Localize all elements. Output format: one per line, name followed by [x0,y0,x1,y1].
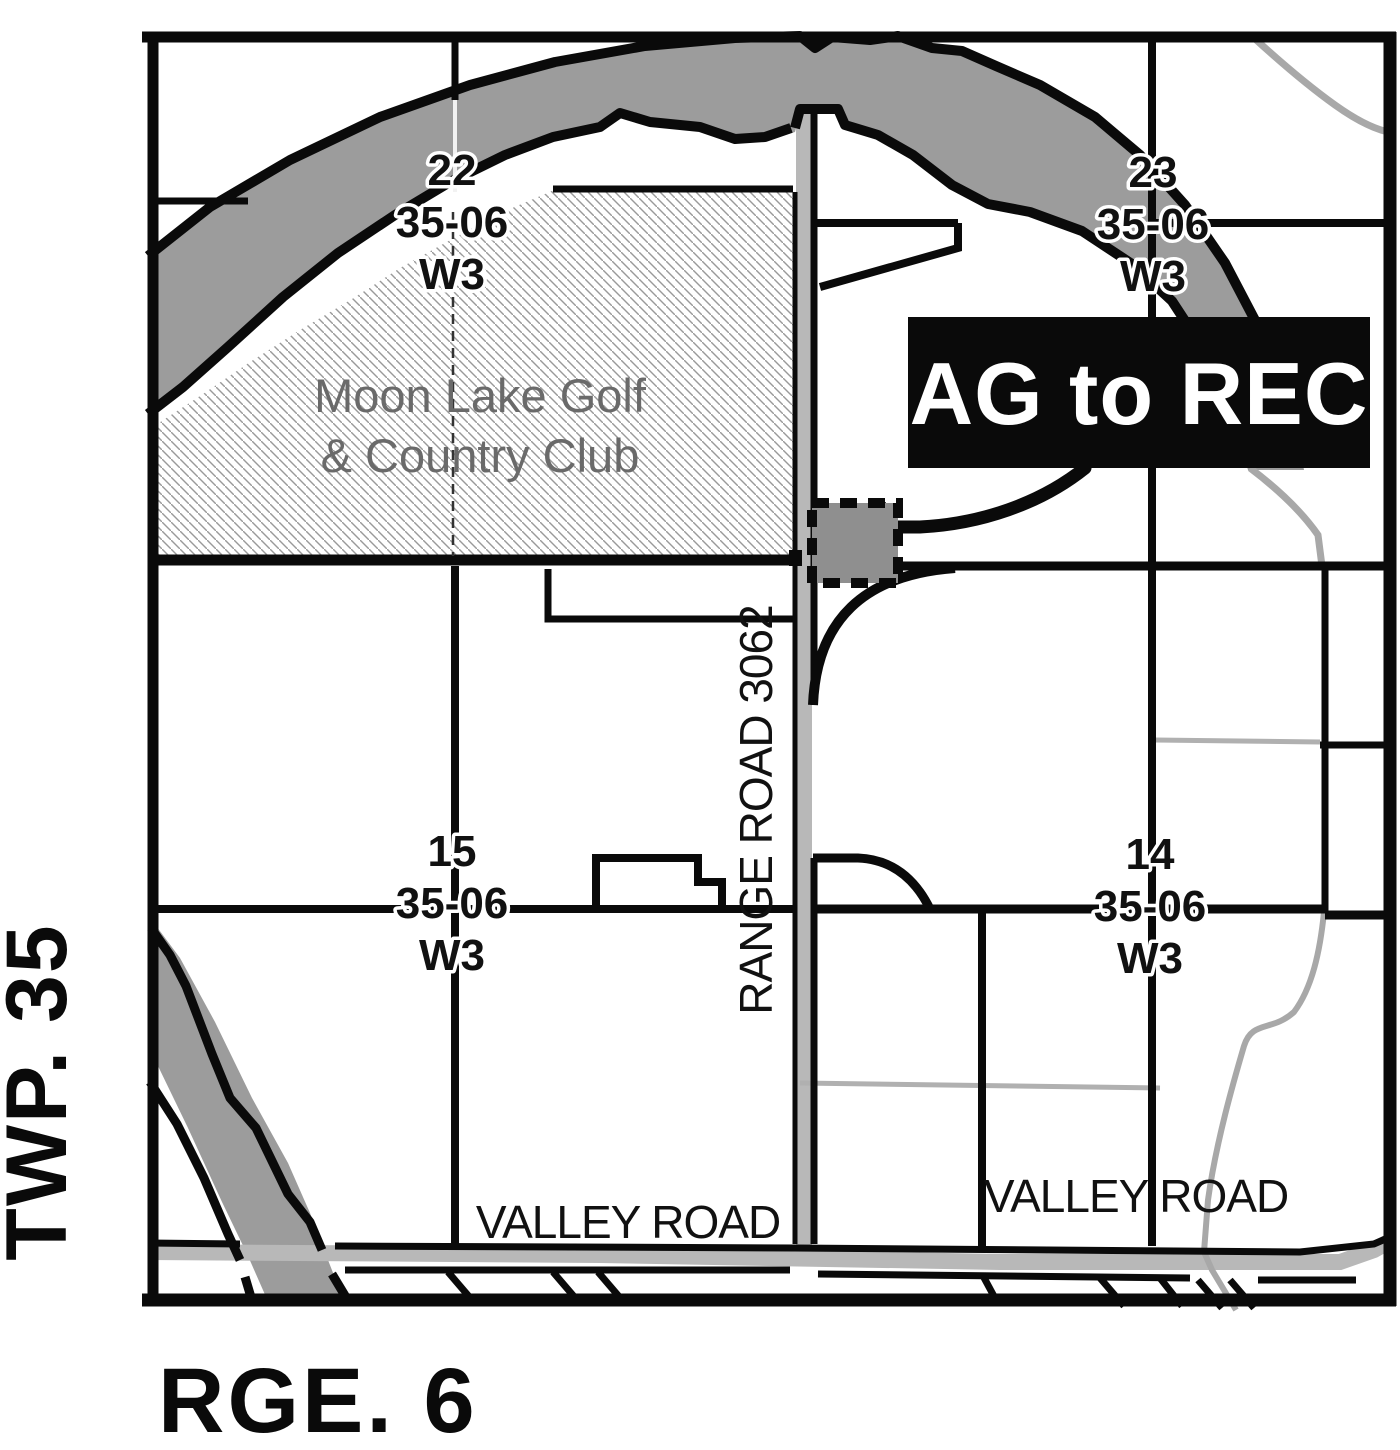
section-15-twprge: 35-06 [396,879,509,928]
valley-road-label-west: VALLEY ROAD [476,1196,780,1248]
section-23-number: 23 [1129,148,1178,197]
callout-label: AG to REC [910,344,1369,443]
subject-parcel [812,503,898,583]
valley-road-north-edge-west [148,1243,240,1244]
section-22-twprge: 35-06 [396,198,509,247]
section-14-twprge: 35-06 [1094,882,1207,931]
range-road-label: RANGE ROAD 3062 [730,605,782,1014]
range-label: RGE. 6 [158,1350,478,1450]
section-22-meridian: W3 [419,250,485,299]
section-23-meridian: W3 [1120,252,1186,301]
golf-label-line2: & Country Club [321,429,640,482]
trail-line-ne [1155,740,1320,742]
golf-label-line1: Moon Lake Golf [314,369,647,422]
section-22-number: 22 [428,146,477,195]
valley-road-south-edge-mid [818,1274,1190,1278]
section-15-number: 15 [428,827,477,876]
section-14-number: 14 [1126,830,1175,879]
township-label: TWP. 35 [0,923,85,1260]
rezoning-map: AG to REC 22 35-06 W3 23 35-06 W3 15 35-… [0,0,1400,1450]
section-14-meridian: W3 [1117,934,1183,983]
section-15-meridian: W3 [419,931,485,980]
map-canvas: AG to REC 22 35-06 W3 23 35-06 W3 15 35-… [0,0,1400,1450]
section-23-twprge: 35-06 [1097,200,1210,249]
valley-road-label-east: VALLEY ROAD [984,1170,1288,1222]
